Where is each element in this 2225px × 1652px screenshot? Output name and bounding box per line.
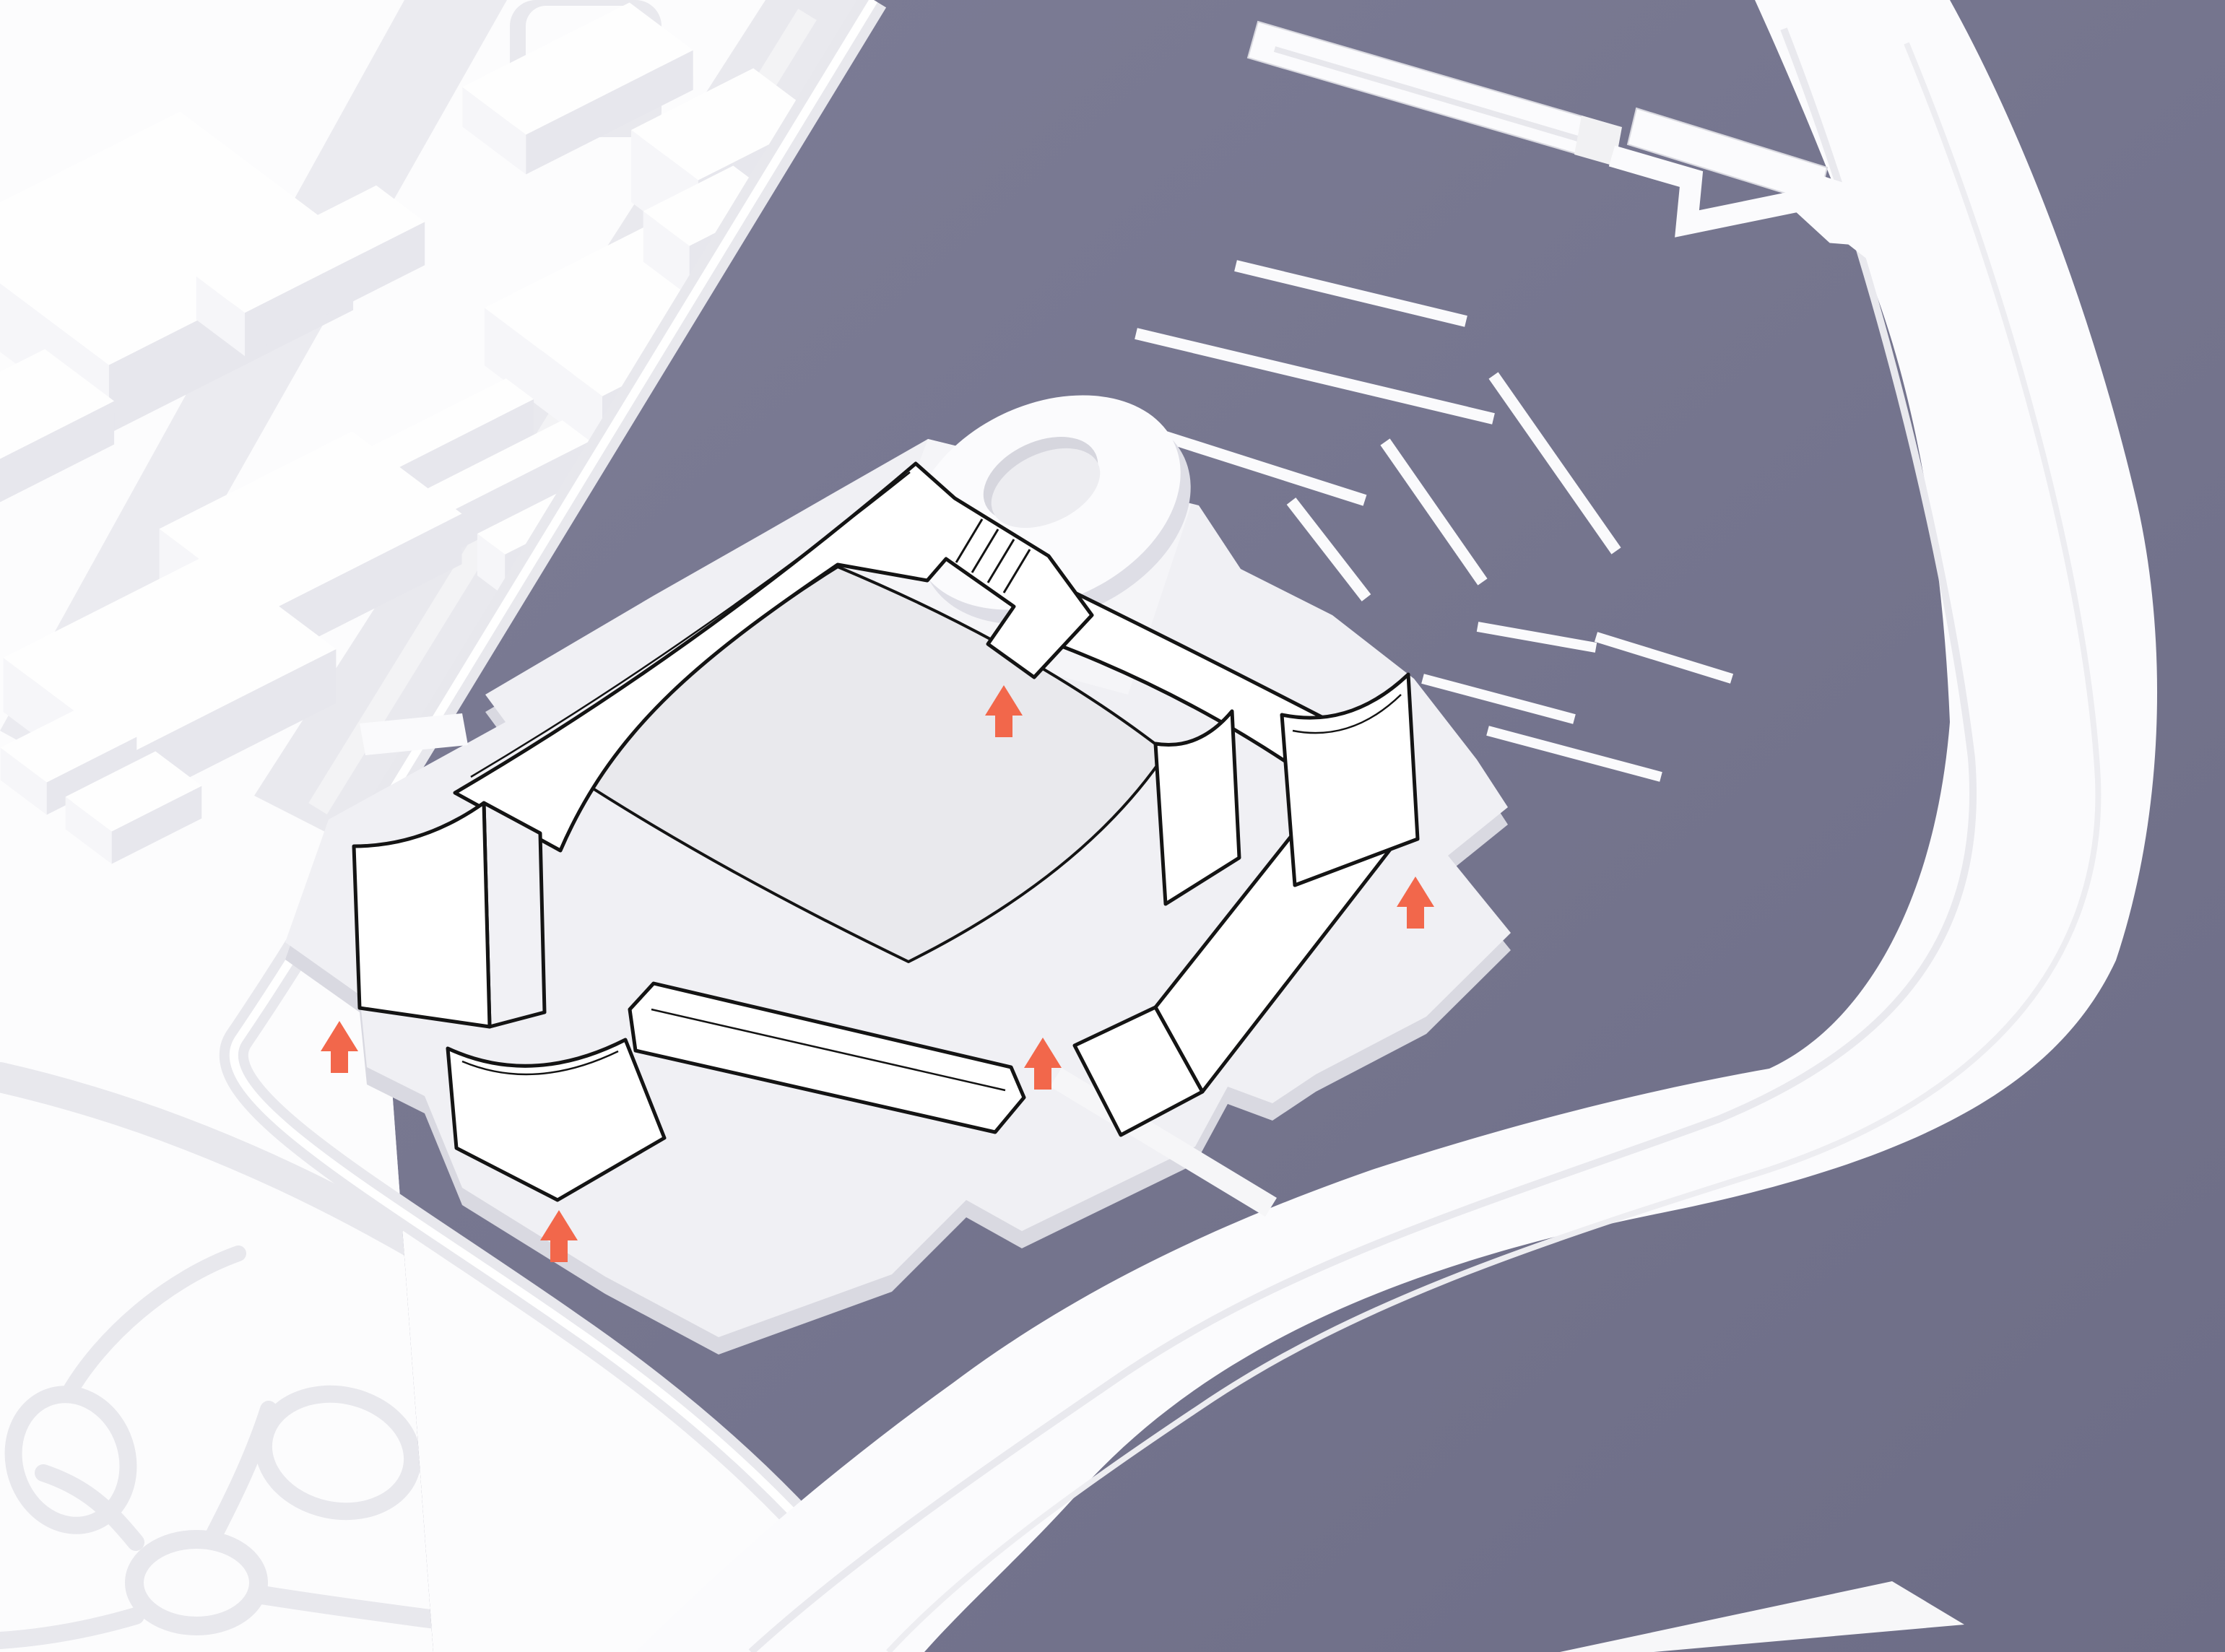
scene-canvas <box>0 0 2225 1652</box>
site-diagram <box>0 0 2225 1652</box>
west-tower-side <box>484 803 545 1027</box>
roundabout <box>134 1539 259 1626</box>
